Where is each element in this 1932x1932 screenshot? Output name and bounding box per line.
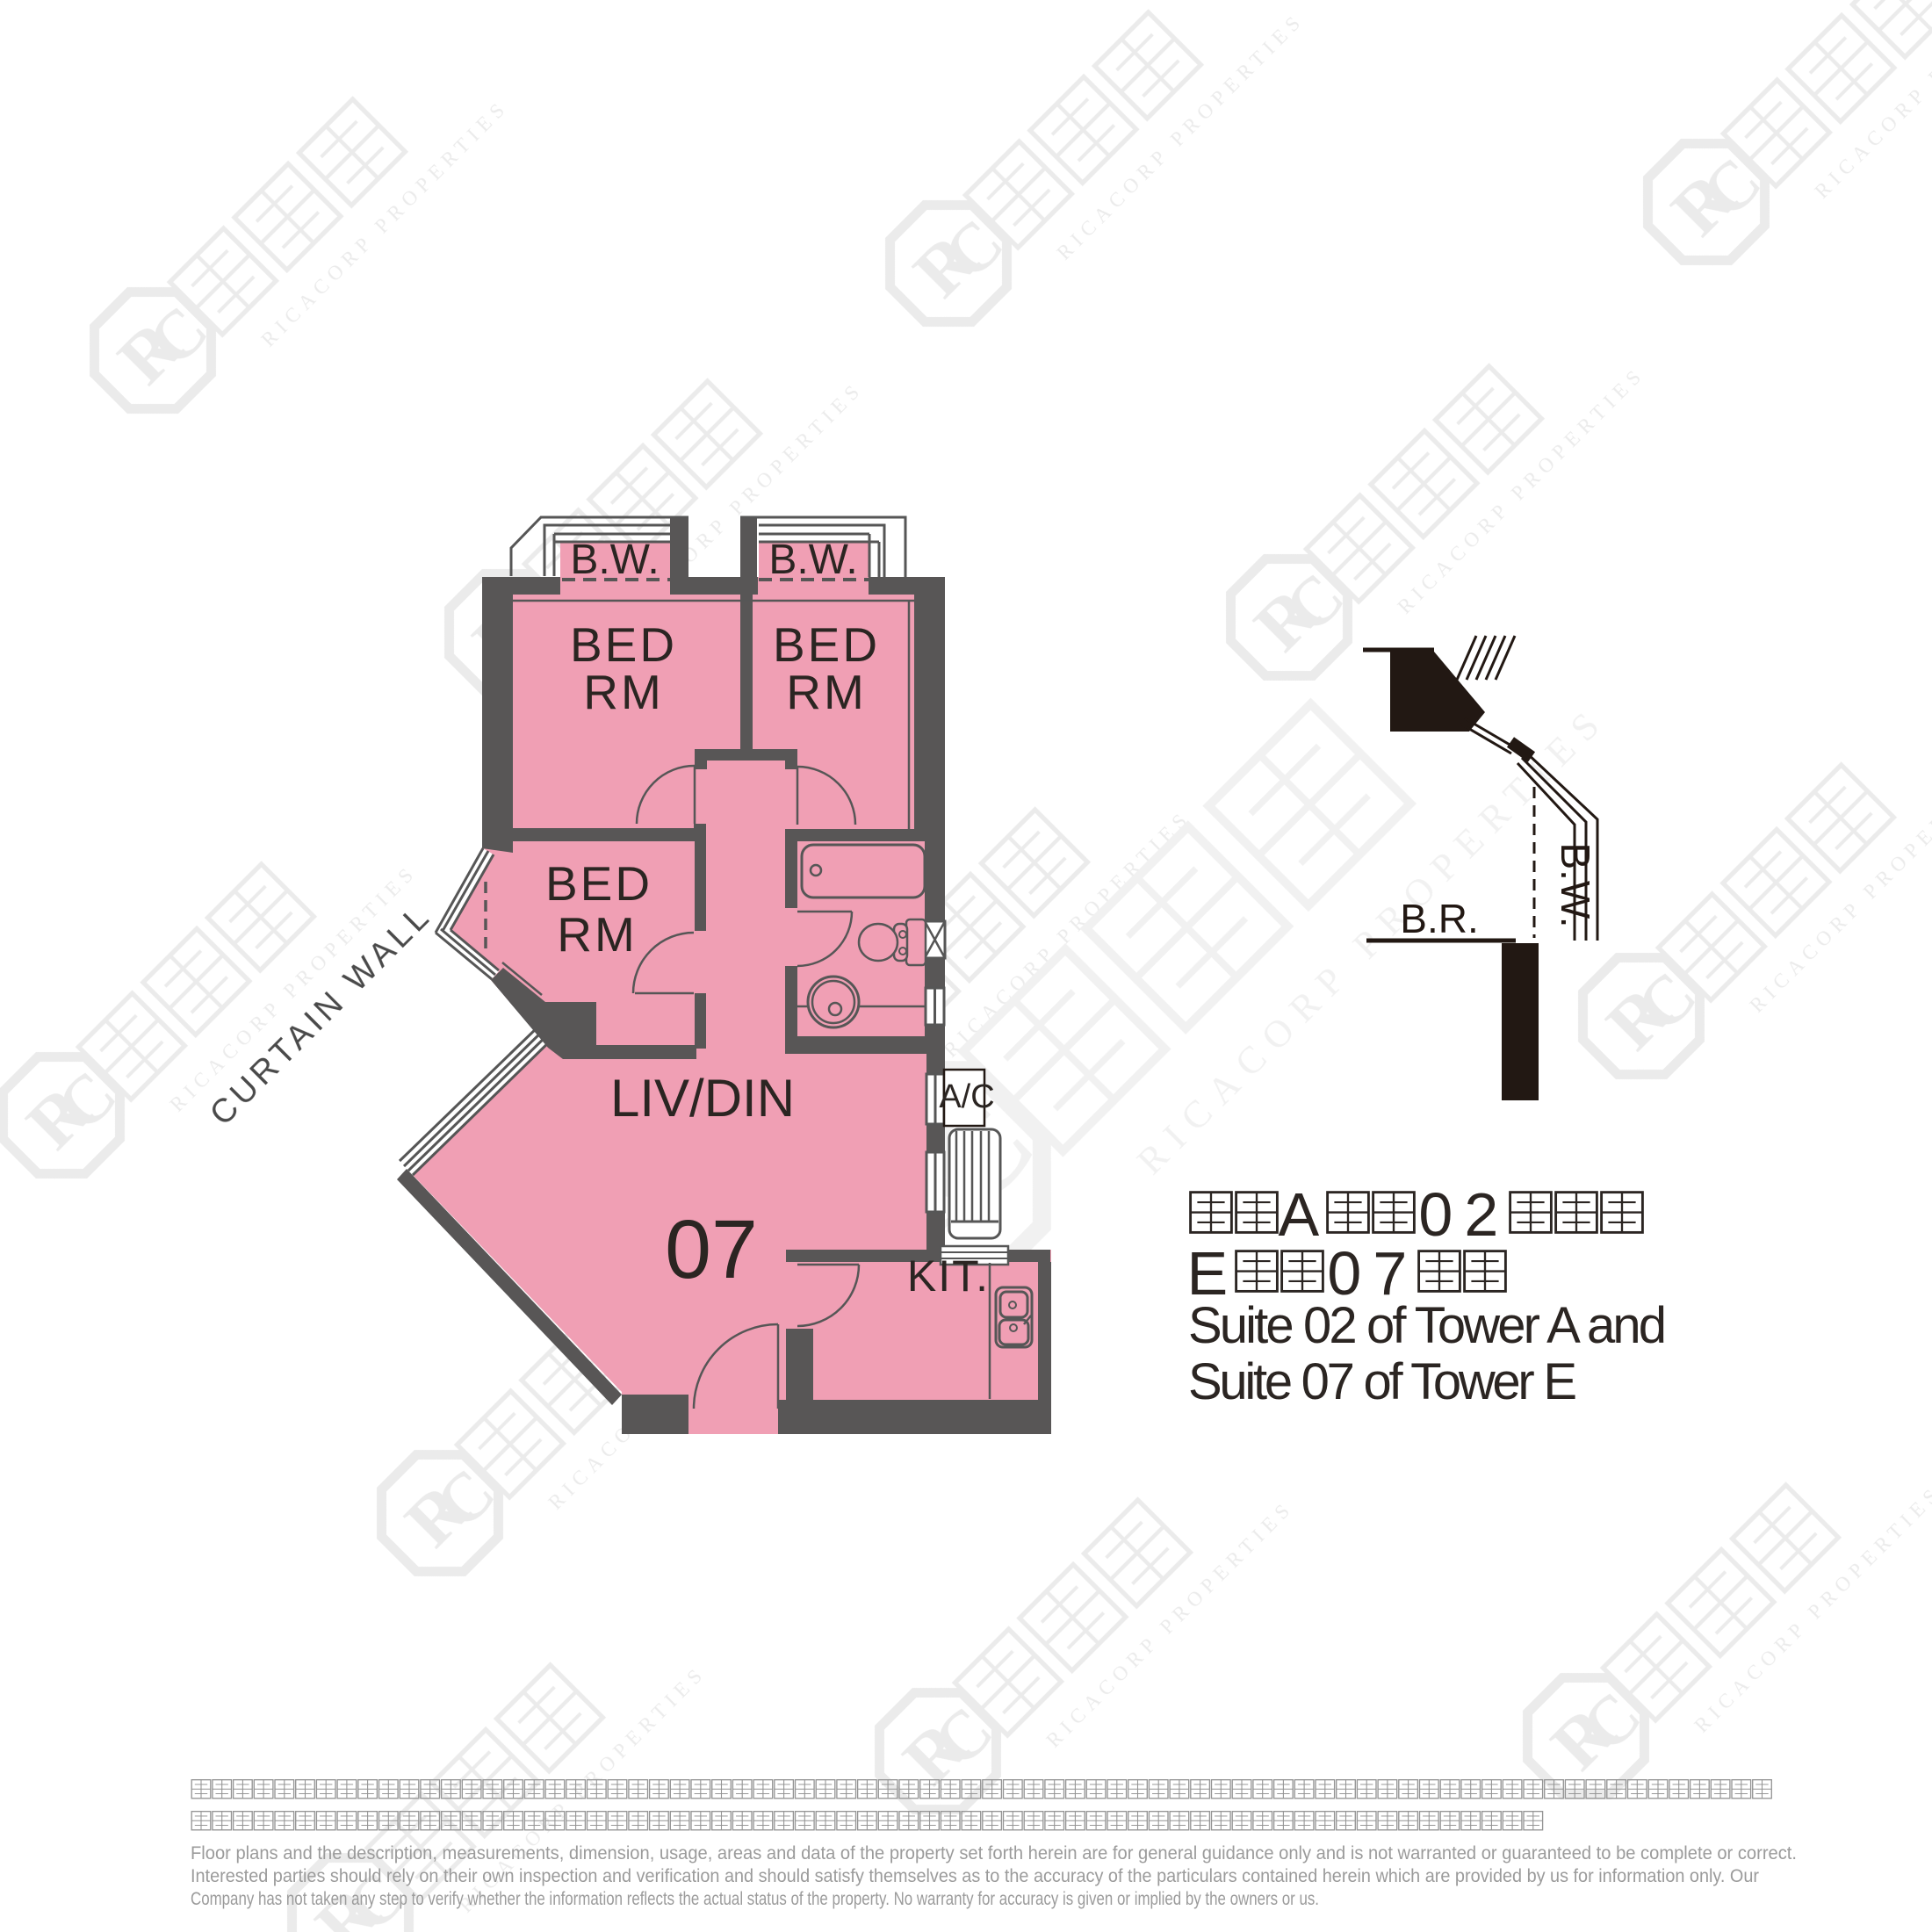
svg-text:KIT.: KIT. — [907, 1251, 990, 1301]
svg-text:BED: BED — [570, 617, 677, 672]
svg-text:BED: BED — [773, 617, 880, 672]
svg-text:07: 07 — [665, 1203, 758, 1296]
svg-text:Suite 02 of Tower A and: Suite 02 of Tower A and — [1188, 1297, 1667, 1354]
svg-text:B.W.: B.W. — [1553, 842, 1598, 927]
svg-text:A/C: A/C — [939, 1078, 994, 1115]
svg-text:RM: RM — [557, 907, 638, 962]
svg-text:Interested parties should rely: Interested parties should rely on their … — [191, 1865, 1759, 1886]
svg-text:RM: RM — [583, 665, 664, 719]
svg-text:B.W.: B.W. — [570, 537, 659, 583]
svg-text:CURTAIN WALL: CURTAIN WALL — [203, 897, 439, 1133]
svg-text:2: 2 — [1464, 1180, 1498, 1249]
svg-text:LIV/DIN: LIV/DIN — [610, 1069, 795, 1128]
svg-text:BED: BED — [545, 856, 652, 911]
svg-text:B.W.: B.W. — [768, 537, 857, 583]
svg-text:Floor plans and the descriptio: Floor plans and the description, measure… — [191, 1842, 1797, 1864]
svg-text:Suite 07 of Tower E: Suite 07 of Tower E — [1188, 1353, 1577, 1410]
svg-text:B.R.: B.R. — [1400, 896, 1478, 941]
svg-text:0: 0 — [1418, 1180, 1453, 1249]
svg-text:A: A — [1278, 1180, 1319, 1249]
svg-text:Company has not taken any step: Company has not taken any step to verify… — [191, 1888, 1319, 1909]
svg-text:RM: RM — [786, 665, 867, 719]
